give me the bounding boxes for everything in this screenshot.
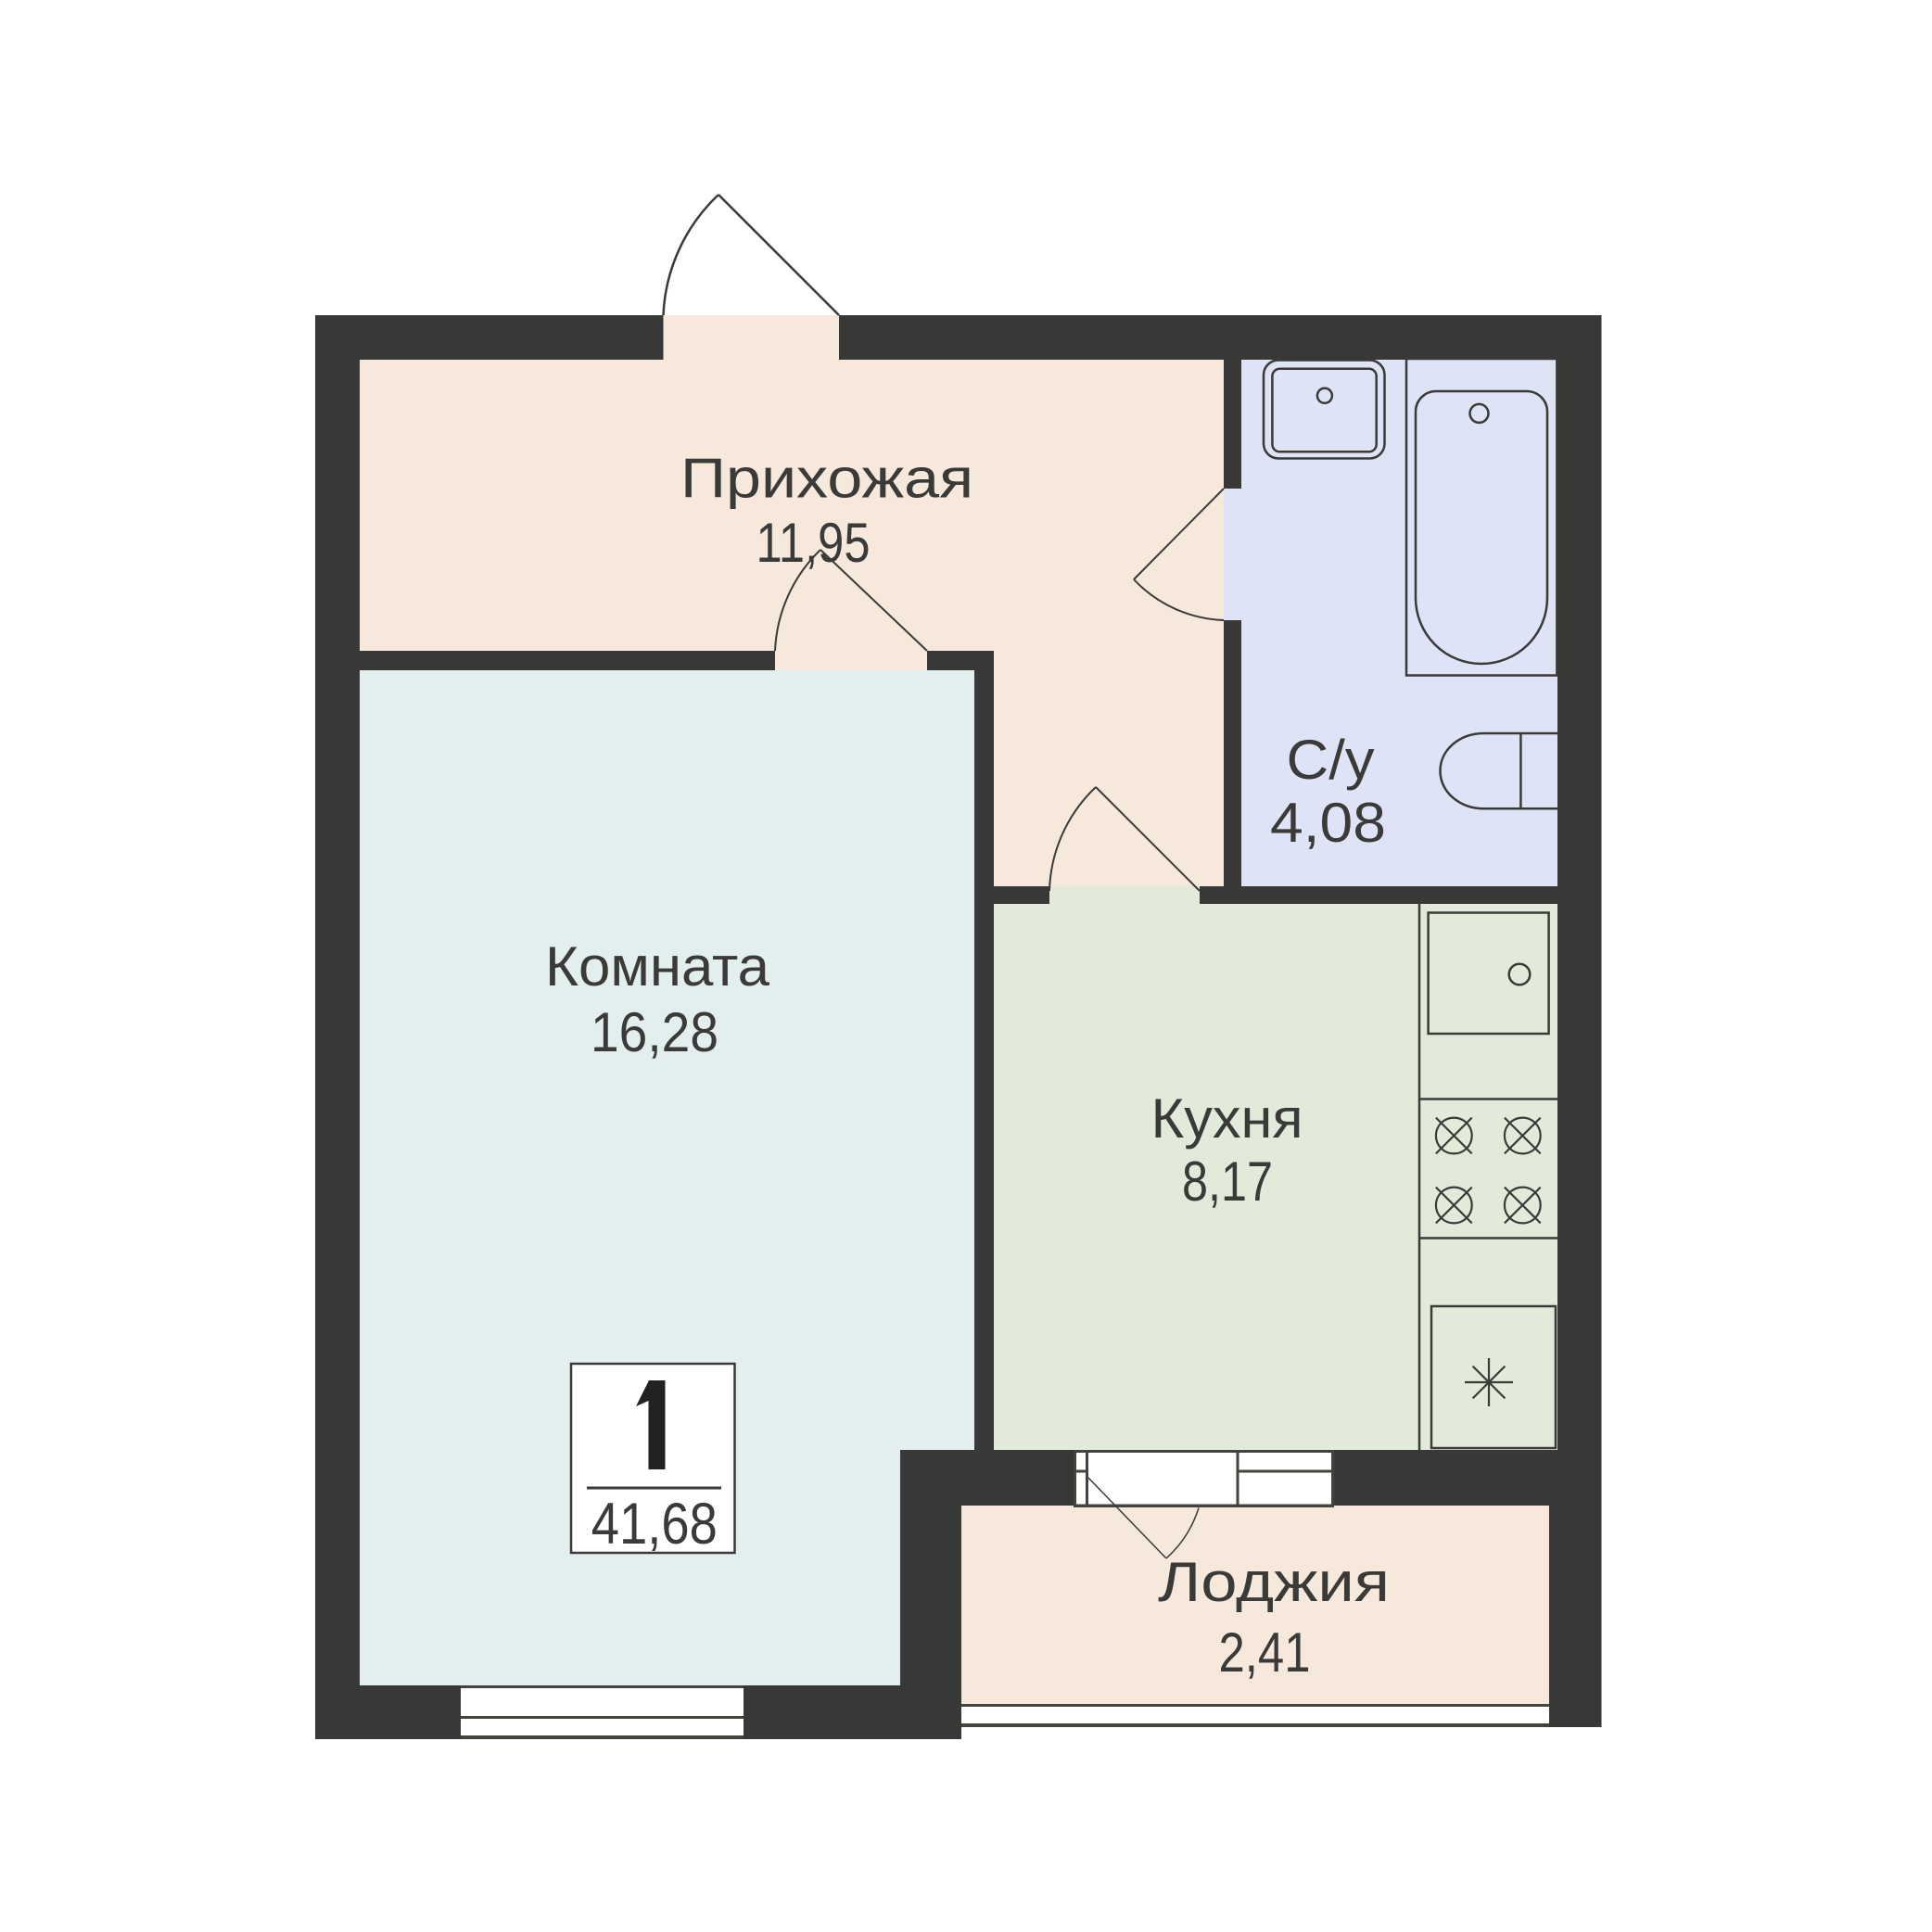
svg-text:41,68: 41,68: [591, 1492, 718, 1557]
svg-text:4,08: 4,08: [1270, 792, 1386, 854]
svg-text:2,41: 2,41: [1219, 1621, 1311, 1684]
svg-text:Комната: Комната: [545, 935, 770, 998]
svg-text:8,17: 8,17: [1182, 1150, 1273, 1213]
svg-text:Лоджия: Лоджия: [1158, 1551, 1390, 1613]
svg-text:Прихожая: Прихожая: [680, 448, 973, 510]
svg-text:11,95: 11,95: [756, 512, 871, 574]
svg-text:Кухня: Кухня: [1151, 1087, 1303, 1150]
svg-text:16,28: 16,28: [591, 1001, 718, 1063]
svg-text:С/у: С/у: [1287, 729, 1375, 791]
